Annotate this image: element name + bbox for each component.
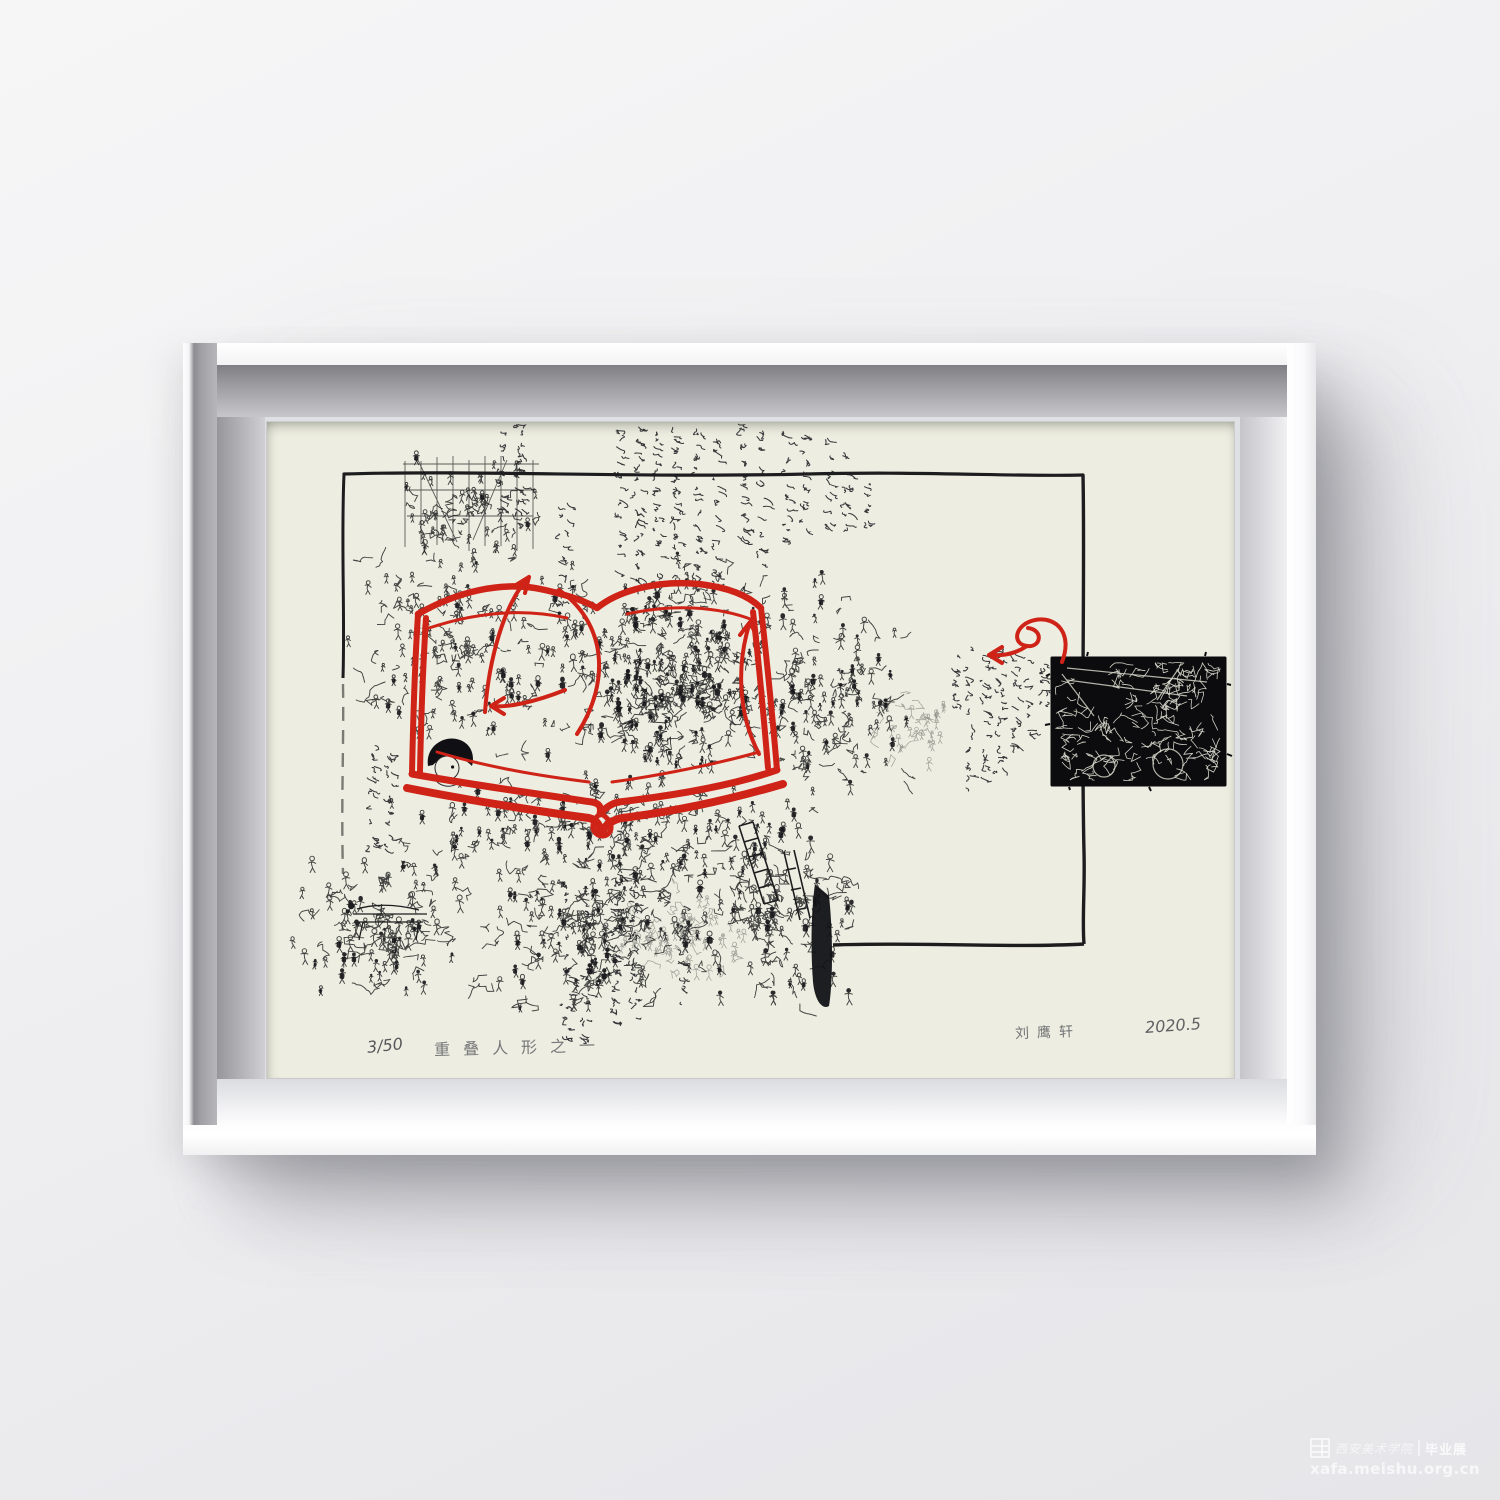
edition-number: 3/50 xyxy=(366,1034,404,1057)
artwork-paper: 3/50 重叠人形之一 刘鹰轩 2020.5 xyxy=(267,422,1234,1078)
shadowbox-inner-left xyxy=(217,365,265,1125)
calligraphy-columns xyxy=(366,424,1051,1043)
site-watermark: 西安美术学院 毕业展 xafa.meishu.org.cn xyxy=(1310,1437,1480,1478)
frame-face-left xyxy=(183,343,217,1155)
frame-face-bottom xyxy=(183,1125,1316,1155)
crowd-sketches xyxy=(290,451,946,1016)
watermark-url: xafa.meishu.org.cn xyxy=(1310,1460,1480,1478)
artwork-drawing xyxy=(267,422,1234,1078)
watermark-academy: 西安美术学院 xyxy=(1335,1440,1413,1457)
frame-face-right xyxy=(1287,343,1316,1155)
artist-signature: 刘鹰轩 xyxy=(1015,1021,1082,1043)
red-curl-arrow xyxy=(989,619,1066,663)
artwork-date: 2020.5 xyxy=(1144,1014,1201,1037)
watermark-exhibition: 毕业展 xyxy=(1425,1439,1467,1458)
gallery-wall: 3/50 重叠人形之一 刘鹰轩 2020.5 西安美术学院 毕业展 xafa.m… xyxy=(0,0,1500,1500)
watermark-row: 西安美术学院 毕业展 xyxy=(1310,1437,1480,1459)
artwork-title: 重叠人形之一 xyxy=(434,1032,609,1061)
red-book-outline xyxy=(407,577,783,836)
woodcut-print xyxy=(1045,652,1232,791)
shadowbox-interior: 3/50 重叠人形之一 刘鹰轩 2020.5 xyxy=(217,365,1287,1125)
watermark-divider xyxy=(1418,1440,1420,1456)
picture-frame: 3/50 重叠人形之一 刘鹰轩 2020.5 xyxy=(183,343,1316,1155)
frame-face-top xyxy=(183,343,1316,365)
shadowbox-inner-right xyxy=(1240,365,1287,1125)
shadowbox-inner-bottom xyxy=(217,1079,1287,1125)
shadowbox-inner-top xyxy=(217,365,1287,417)
watermark-logo-icon xyxy=(1310,1438,1330,1458)
